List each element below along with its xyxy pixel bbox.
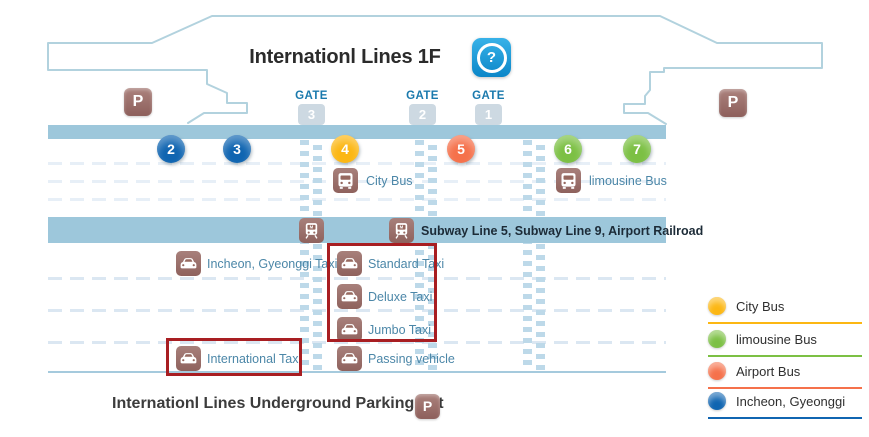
terminal-map: Internationl Lines 1F ? P P GATE 3 GATE … xyxy=(0,0,869,437)
car-icon xyxy=(337,346,362,371)
lane-divider xyxy=(48,162,666,165)
platform-number-7: 7 xyxy=(623,135,651,163)
parking-icon-right: P xyxy=(719,89,747,117)
svg-text:M: M xyxy=(310,225,314,230)
legend-label: City Bus xyxy=(736,299,784,314)
gate-3: GATE 3 xyxy=(298,90,325,125)
gate-label: GATE xyxy=(289,90,334,102)
legend-dot xyxy=(708,330,726,348)
legend-underline xyxy=(708,355,862,357)
passing-vehicle-label: Passing vehicle xyxy=(368,352,455,366)
platform-number-6: 6 xyxy=(554,135,582,163)
gate-number: 1 xyxy=(475,104,502,125)
parking-icon-footer: P xyxy=(415,394,440,419)
highlight-box-taxi-group xyxy=(327,243,437,342)
svg-text:M: M xyxy=(400,225,404,230)
legend-dot xyxy=(708,392,726,410)
lane-divider xyxy=(48,198,666,201)
underground-parking-caption: Internationl Lines Underground Parking L… xyxy=(112,395,444,413)
legend-underline xyxy=(708,322,862,324)
highlight-box-international-taxi xyxy=(166,338,302,376)
subway-icon: M xyxy=(299,218,324,243)
gate-label: GATE xyxy=(466,90,511,102)
subway-lines-label: Subway Line 5, Subway Line 9, Airport Ra… xyxy=(421,224,703,238)
platform-number-5: 5 xyxy=(447,135,475,163)
gate-label: GATE xyxy=(400,90,445,102)
legend-dot xyxy=(708,362,726,380)
platform-number-3: 3 xyxy=(223,135,251,163)
question-mark-icon: ? xyxy=(477,43,507,73)
legend-underline xyxy=(708,387,862,389)
road-bottom-line xyxy=(48,371,666,373)
bus-icon xyxy=(333,168,358,193)
help-button[interactable]: ? xyxy=(472,38,511,77)
legend-label: Airport Bus xyxy=(736,364,800,379)
crosswalk-gate1 xyxy=(523,140,545,371)
gate-number: 3 xyxy=(298,104,325,125)
legend-label: Incheon, Gyeonggi xyxy=(736,394,845,409)
limousine-bus-label: limousine Bus xyxy=(589,174,667,188)
incheon-gyeonggi-taxi-label: Incheon, Gyeonggi Taxi xyxy=(207,257,337,271)
legend-dot xyxy=(708,297,726,315)
platform-number-2: 2 xyxy=(157,135,185,163)
subway-icon: M xyxy=(389,218,414,243)
gate-2: GATE 2 xyxy=(409,90,436,125)
gate-number: 2 xyxy=(409,104,436,125)
platform-number-4: 4 xyxy=(331,135,359,163)
page-title: Internationl Lines 1F xyxy=(230,46,460,69)
bus-icon xyxy=(556,168,581,193)
legend-label: limousine Bus xyxy=(736,332,817,347)
legend-underline xyxy=(708,417,862,419)
city-bus-label: City Bus xyxy=(366,174,413,188)
gate-1: GATE 1 xyxy=(475,90,502,125)
crosswalk-gate3 xyxy=(300,140,322,371)
taxi-icon xyxy=(176,251,201,276)
parking-icon-left: P xyxy=(124,88,152,116)
